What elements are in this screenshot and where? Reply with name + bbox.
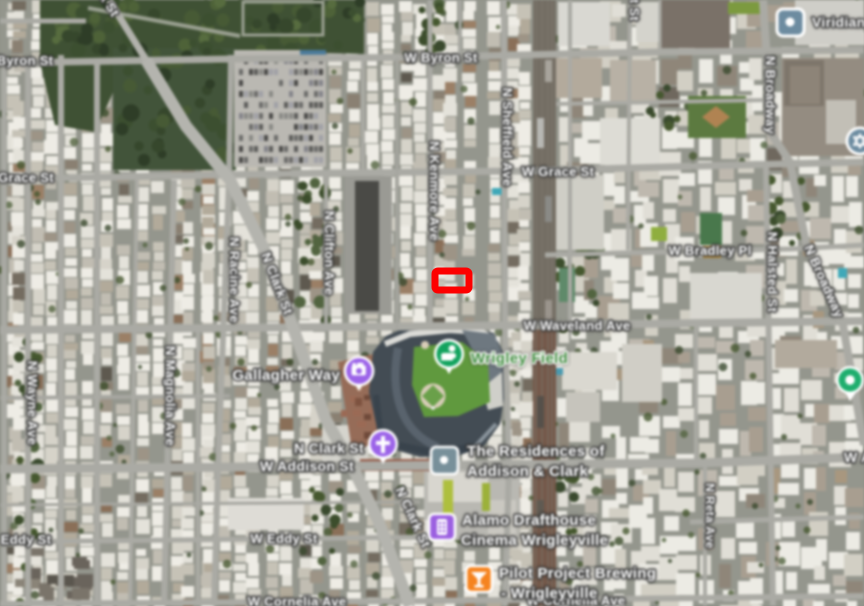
svg-text:Cinema Wrigleyville: Cinema Wrigleyville [461,532,608,549]
svg-text:- Wrigleyville: - Wrigleyville [501,585,597,602]
svg-text:W Waveland Ave: W Waveland Ave [524,318,631,333]
svg-text:N Broadway: N Broadway [763,56,778,135]
svg-text:Gallagher Way: Gallagher Way [232,367,340,384]
svg-text:W Cornelia Ave: W Cornelia Ave [248,594,347,606]
svg-text:W Byron St: W Byron St [404,50,477,65]
svg-text:N Reta Ave: N Reta Ave [703,483,717,548]
svg-text:Eddy St: Eddy St [1,532,52,547]
svg-text:W Eddy St: W Eddy St [251,531,318,546]
svg-text:N Magnolia Ave: N Magnolia Ave [163,346,178,446]
svg-text:N Kenmore Ave: N Kenmore Ave [427,141,442,241]
svg-text:N Clark St: N Clark St [294,440,364,456]
svg-text:W Grace St: W Grace St [522,164,595,179]
svg-text:N Wayne Ave: N Wayne Ave [25,361,40,445]
svg-text:W Addison St: W Addison St [260,458,354,474]
svg-text:Byron St: Byron St [0,53,54,68]
svg-text:Alamo Drafthouse: Alamo Drafthouse [462,512,596,529]
svg-text:Pilot Project Brewing: Pilot Project Brewing [499,565,656,582]
svg-text:W Bradley Pl: W Bradley Pl [668,243,751,258]
svg-text:The Residences of: The Residences of [467,443,605,460]
svg-text:W Addison St: W Addison St [844,449,864,465]
svg-text:Addison & Clark: Addison & Clark [467,463,589,480]
svg-text:t St: t St [627,0,642,21]
svg-text:Viridian: Viridian [812,14,864,30]
svg-text:Grace St: Grace St [0,170,54,185]
svg-text:N Clifton Ave: N Clifton Ave [322,211,337,296]
svg-text:Wrigley Field: Wrigley Field [471,350,568,367]
svg-text:N Sheffield Ave: N Sheffield Ave [500,88,515,187]
svg-text:N Halsted St: N Halsted St [765,232,780,313]
svg-text:N Racine Ave: N Racine Ave [227,237,242,323]
